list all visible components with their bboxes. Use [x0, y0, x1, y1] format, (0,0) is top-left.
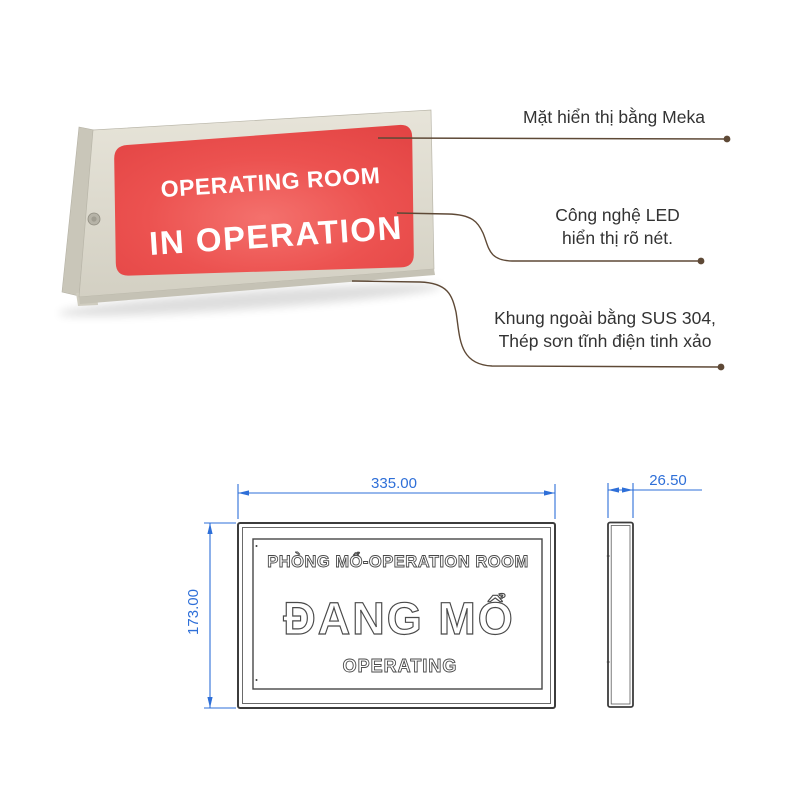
annotation-line: Thép sơn tĩnh điện tinh xảo [483, 330, 727, 353]
annotation-line: Khung ngoài bằng SUS 304, [483, 307, 727, 330]
front-text-top: PHÒNG MỔ-OPERATION ROOM [267, 552, 528, 571]
leader-dot [698, 258, 705, 265]
cad-front-view: PHÒNG MỔ-OPERATION ROOM ĐANG MỔ OPERATIN… [238, 523, 555, 708]
annotation-led-technology: Công nghệ LED hiển thị rõ nét. [500, 204, 735, 250]
front-text-main: ĐANG MỔ [283, 593, 515, 644]
corner-mark [256, 545, 258, 547]
leader-dot [718, 364, 725, 371]
annotation-line: hiển thị rõ nét. [500, 227, 735, 250]
annotation-line: Mặt hiển thị bằng Meka [495, 106, 733, 129]
front-text-bottom: OPERATING [343, 656, 458, 676]
cad-side-view [607, 523, 633, 708]
dim-width-value: 335.00 [371, 475, 417, 492]
corner-mark [256, 679, 258, 681]
product-spec-sheet: OPERATING ROOM IN OPERATION PHÒNG MỔ-OPE… [0, 0, 800, 800]
annotation-line: Công nghệ LED [500, 204, 735, 227]
dim-height [204, 523, 236, 708]
annotation-display-material: Mặt hiển thị bằng Meka [495, 106, 733, 129]
leader-dot [724, 136, 731, 143]
annotation-frame-material: Khung ngoài bằng SUS 304, Thép sơn tĩnh … [483, 307, 727, 353]
dim-height-value: 173.00 [185, 589, 202, 635]
dim-depth-value: 26.50 [649, 472, 687, 489]
side-outer-frame [608, 523, 633, 708]
screw-icon [88, 213, 100, 225]
sign-photo: OPERATING ROOM IN OPERATION [58, 110, 442, 322]
